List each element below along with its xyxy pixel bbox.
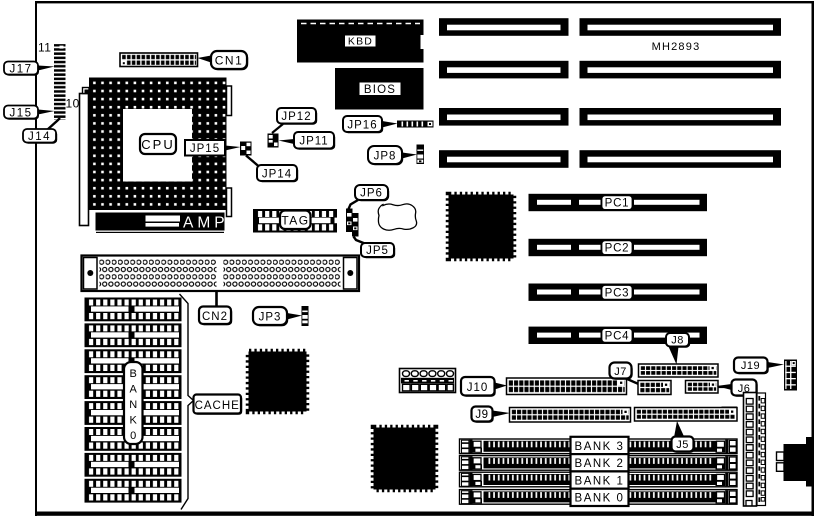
svg-text:10: 10 (66, 97, 80, 111)
svg-text:J8: J8 (671, 335, 684, 347)
svg-text:A: A (130, 384, 138, 396)
svg-text:J17: J17 (9, 63, 32, 75)
svg-text:AMP: AMP (183, 215, 229, 232)
svg-text:J15: J15 (9, 107, 32, 119)
svg-text:PC4: PC4 (605, 330, 630, 342)
svg-text:JP15: JP15 (190, 143, 220, 155)
svg-text:BANK 0: BANK 0 (575, 493, 625, 505)
svg-text:JP11: JP11 (299, 136, 328, 148)
svg-text:CACHE: CACHE (195, 400, 240, 412)
svg-text:J5: J5 (676, 439, 689, 451)
svg-text:B: B (130, 368, 137, 380)
svg-text:K: K (130, 415, 138, 427)
svg-text:JP12: JP12 (281, 111, 311, 123)
svg-text:0: 0 (130, 430, 136, 442)
svg-text:CPU: CPU (141, 137, 174, 152)
svg-text:J7: J7 (614, 366, 627, 378)
svg-text:J19: J19 (741, 360, 760, 372)
svg-text:BANK 2: BANK 2 (575, 458, 625, 470)
svg-text:JP16: JP16 (347, 119, 377, 131)
svg-text:J10: J10 (467, 382, 489, 394)
svg-text:CN1: CN1 (215, 54, 244, 68)
svg-text:JP3: JP3 (259, 312, 282, 324)
svg-text:PC1: PC1 (605, 198, 630, 210)
svg-text:KBD: KBD (348, 36, 373, 48)
svg-text:BANK 1: BANK 1 (575, 475, 625, 487)
svg-text:TAG: TAG (281, 214, 309, 228)
svg-text:J14: J14 (28, 131, 51, 143)
svg-text:CN2: CN2 (202, 311, 228, 323)
svg-text:N: N (129, 399, 137, 411)
svg-text:PC2: PC2 (605, 243, 630, 255)
svg-text:PC3: PC3 (605, 287, 630, 299)
svg-text:JP6: JP6 (360, 188, 383, 200)
svg-text:JP14: JP14 (262, 168, 292, 180)
svg-text:J9: J9 (475, 409, 488, 421)
svg-text:MH2893: MH2893 (652, 41, 701, 53)
svg-text:11: 11 (38, 41, 51, 55)
svg-text:BIOS: BIOS (364, 84, 396, 96)
svg-text:JP8: JP8 (374, 151, 397, 163)
svg-text:BANK 3: BANK 3 (575, 441, 625, 453)
svg-text:JP5: JP5 (366, 245, 389, 257)
